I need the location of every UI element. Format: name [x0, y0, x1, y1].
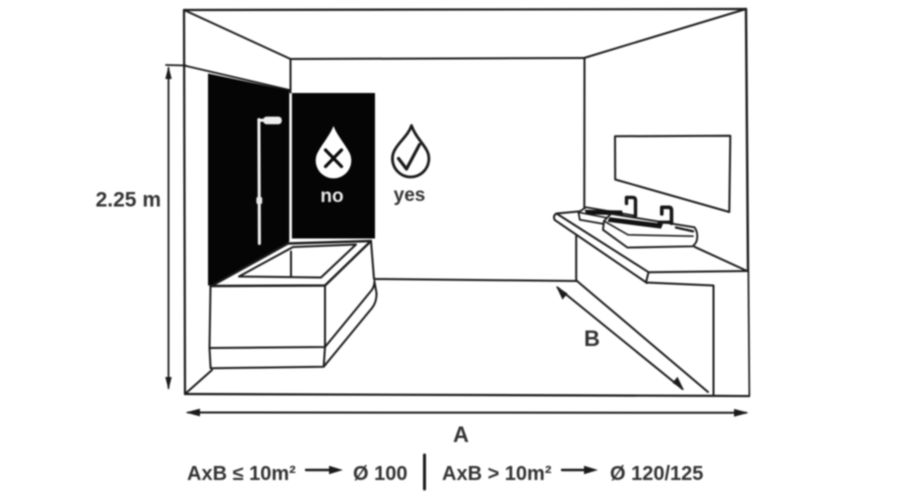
- svg-text:2.25 m: 2.25 m: [96, 189, 161, 212]
- svg-text:Ø 120/125: Ø 120/125: [610, 463, 703, 485]
- svg-text:no: no: [320, 186, 343, 207]
- svg-text:Ø 100: Ø 100: [353, 463, 407, 485]
- svg-text:B: B: [584, 326, 600, 351]
- svg-text:AxB ≤ 10m²: AxB ≤ 10m²: [187, 463, 296, 485]
- svg-text:A: A: [453, 422, 469, 447]
- svg-text:yes: yes: [394, 185, 426, 206]
- svg-text:AxB > 10m²: AxB > 10m²: [442, 463, 552, 485]
